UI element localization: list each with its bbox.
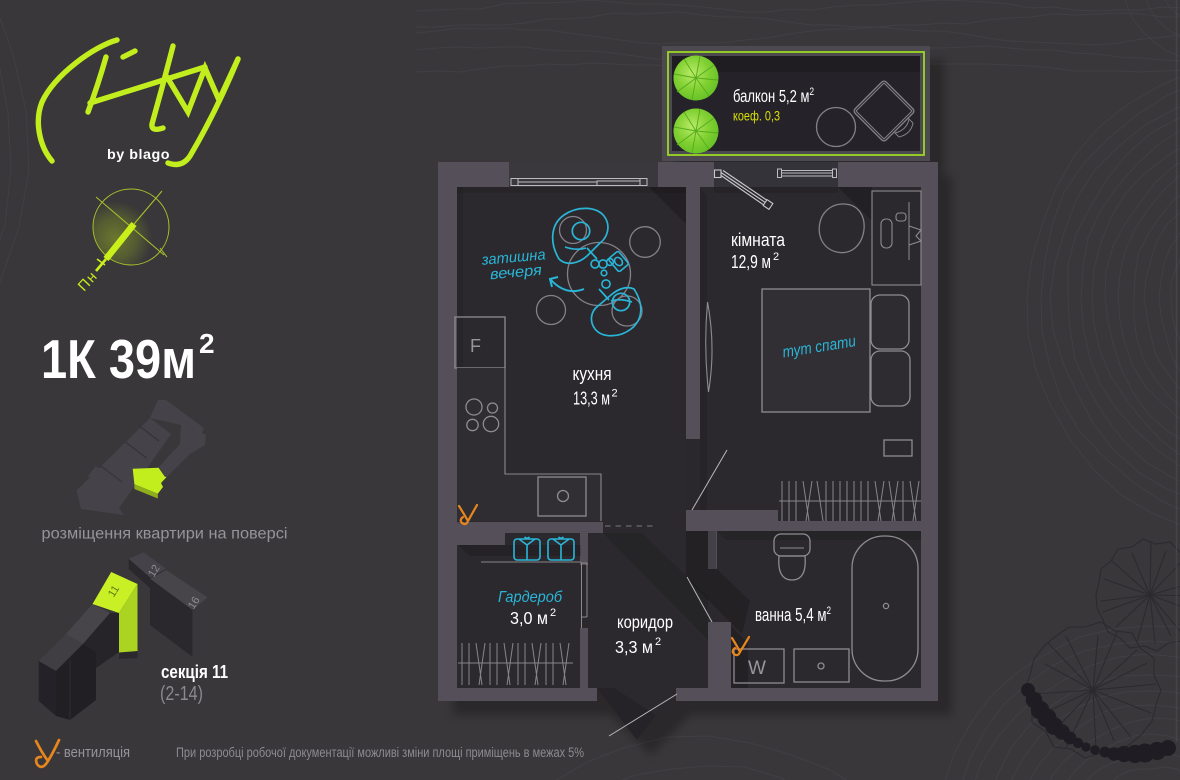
svg-text:2: 2 (612, 388, 618, 400)
svg-text:- вентиляція: - вентиляція (56, 745, 130, 761)
svg-text:3,3 м: 3,3 м (615, 637, 653, 657)
svg-text:секція 11: секція 11 (161, 662, 228, 682)
svg-text:2: 2 (199, 328, 215, 359)
svg-text:кухня: кухня (573, 364, 612, 384)
svg-text:1К 39м: 1К 39м (41, 328, 196, 390)
svg-text:(2-14): (2-14) (160, 683, 203, 705)
svg-text:W: W (748, 658, 766, 679)
svg-text:кімната: кімната (731, 230, 786, 250)
svg-text:2: 2 (655, 636, 661, 648)
svg-text:При розробці робочої документа: При розробці робочої документації можлив… (176, 745, 584, 760)
svg-text:ванна 5,4 м2: ванна 5,4 м2 (755, 605, 831, 625)
svg-text:3,0 м: 3,0 м (510, 608, 548, 628)
svg-text:2: 2 (773, 251, 779, 263)
svg-text:12,9 м: 12,9 м (731, 252, 771, 272)
svg-text:F: F (470, 336, 481, 356)
svg-text:розміщення квартири на поверсі: розміщення квартири на поверсі (42, 526, 288, 543)
svg-text:Гардероб: Гардероб (498, 589, 563, 606)
svg-text:коеф. 0,3: коеф. 0,3 (733, 108, 780, 124)
svg-text:by blago: by blago (107, 146, 170, 162)
svg-text:13,3 м: 13,3 м (573, 389, 610, 409)
svg-text:коридор: коридор (617, 612, 673, 632)
svg-text:балкон 5,2 м2: балкон 5,2 м2 (733, 86, 814, 106)
svg-text:2: 2 (550, 607, 556, 619)
